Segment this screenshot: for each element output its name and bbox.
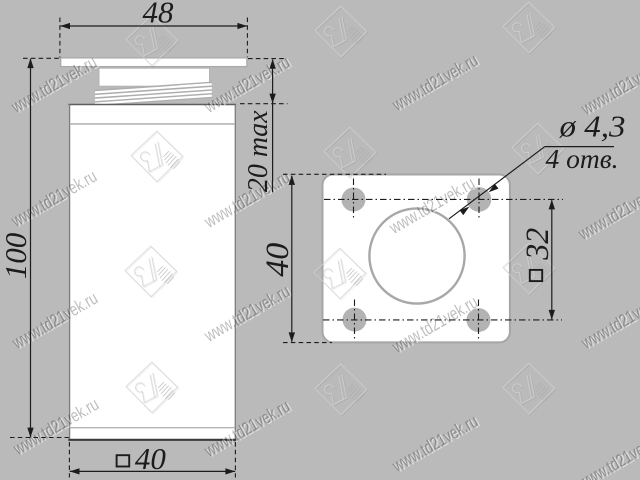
svg-text:48: 48 — [143, 0, 175, 30]
svg-text:40: 40 — [260, 242, 296, 277]
svg-text:100: 100 — [0, 232, 33, 279]
svg-text:32: 32 — [520, 228, 556, 261]
svg-text:4 отв.: 4 отв. — [546, 144, 619, 174]
svg-text:40: 40 — [135, 441, 167, 476]
svg-text:20 max: 20 max — [243, 110, 274, 192]
svg-text:ø 4,3: ø 4,3 — [558, 109, 625, 144]
